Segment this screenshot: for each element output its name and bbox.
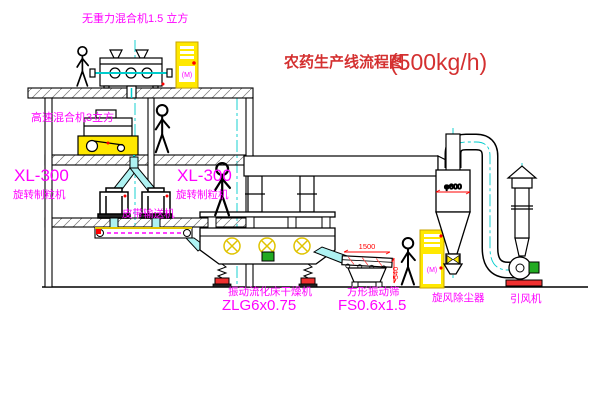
cad-point-dot (162, 83, 165, 86)
cad-drawing-canvas: (M) (0, 0, 600, 403)
rain-cap (508, 166, 536, 178)
cad-point-dot (107, 142, 110, 145)
label-dryer-model: ZLG6x0.75 (222, 297, 296, 314)
cabinet-mark: (M) (427, 267, 438, 274)
cyclone-diameter-dim: φ600 (444, 182, 461, 191)
dryer-motor (262, 252, 274, 261)
cad-point-dot (166, 195, 169, 198)
belt-conveyor (95, 228, 205, 251)
diagram-title-capacity: (500kg/h) (390, 49, 487, 75)
indicator-dot (192, 61, 196, 65)
cad-point-dot (124, 195, 127, 198)
vibrating-screen: 1500 540 (342, 242, 400, 287)
person-icon (156, 105, 169, 152)
screen-height-dim: 540 (391, 267, 400, 280)
label-granulator-left: 旋转制粒机 (13, 188, 66, 201)
belt-drive (96, 229, 101, 234)
label-xl300-right: XL-300 (177, 166, 232, 185)
control-cabinet-right: (M) (420, 230, 444, 288)
control-cabinet-top: (M) (176, 42, 198, 88)
label-xl300-left: XL-300 (14, 166, 69, 185)
fan-motor (529, 262, 539, 273)
label-belt-conveyor: 皮带输送机 (122, 207, 175, 220)
cabinet-mark: (M) (182, 72, 193, 79)
induced-draft-fan (506, 257, 542, 286)
label-cyclone: 旋风除尘器 (432, 291, 485, 304)
indicator-dot (439, 266, 442, 269)
exhaust-duct (244, 156, 452, 212)
label-gravity-mixer: 无重力混合机1.5 立方 (82, 11, 188, 25)
label-fan: 引风机 (510, 292, 542, 305)
label-high-speed-mixer: 高速混合机3立方 (31, 110, 114, 124)
process-flow-diagram: (M) (0, 0, 600, 403)
exhaust-stack (508, 166, 536, 256)
indicator-dot (439, 234, 442, 237)
person-icon (77, 47, 88, 86)
person-icon (402, 238, 415, 285)
label-screen-model: FS0.6x1.5 (338, 297, 406, 314)
diagram-title: 农药生产线流程图 (283, 53, 404, 71)
screen-length-dim: 1500 (359, 242, 376, 251)
label-granulator-right: 旋转制粒机 (176, 188, 229, 201)
